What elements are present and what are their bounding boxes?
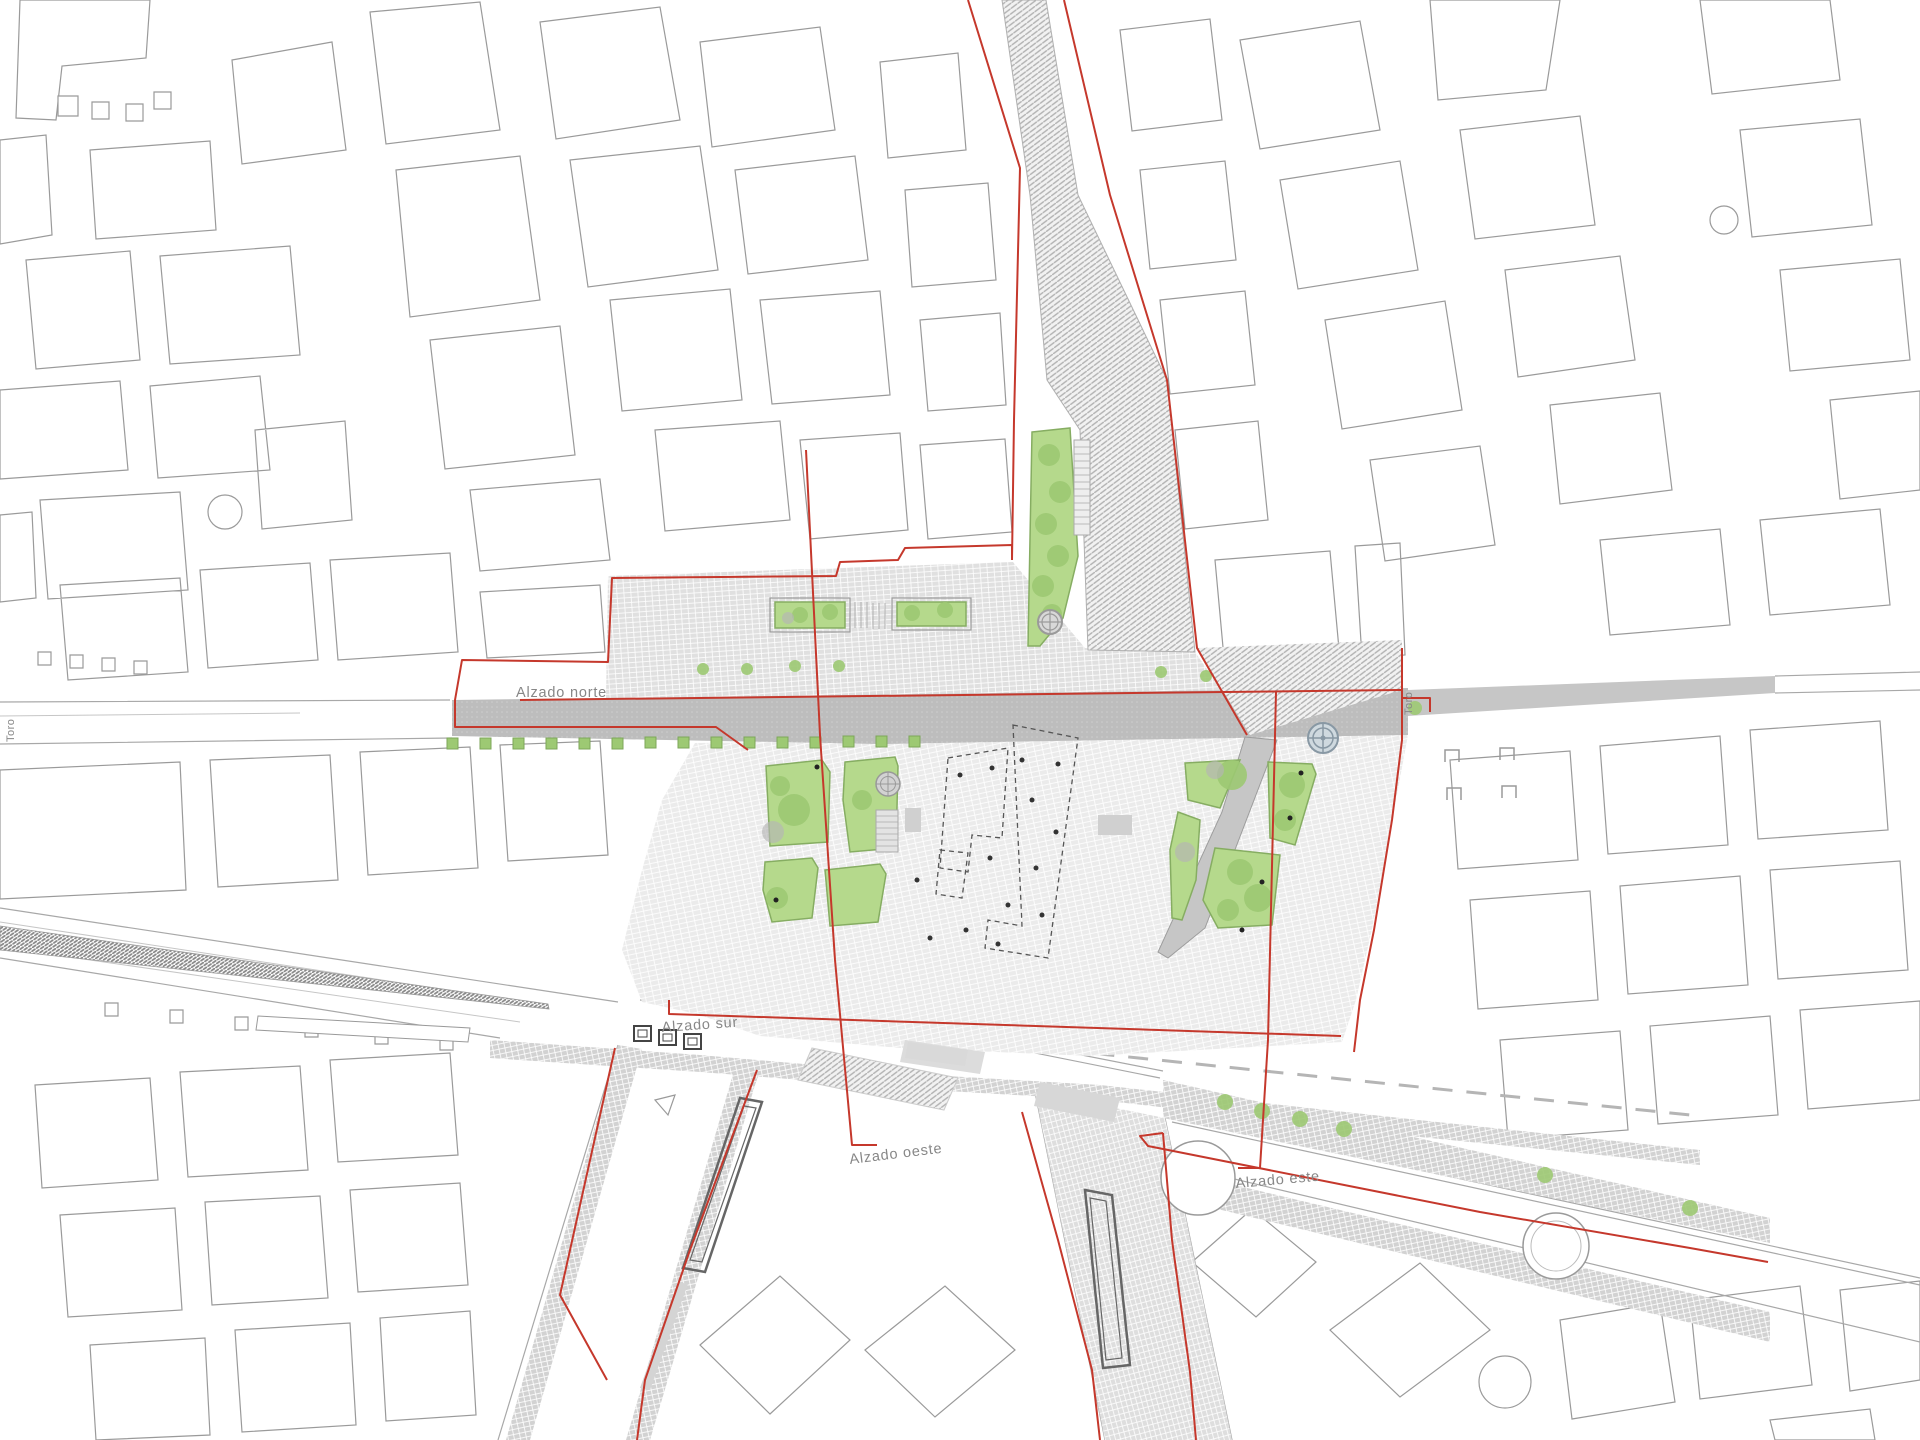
fountain-wheel-plaza [1308,723,1338,753]
round-outline-se [1479,1356,1531,1408]
buildings-west-mid [0,741,608,899]
plaza-stair-west [876,810,898,852]
kiosk-strip-west-road [256,1016,470,1042]
label-alzado-este: Alzado este [1235,1169,1321,1192]
buildings-south-center [700,1276,1015,1417]
label-toro-east: Toro [1403,692,1415,715]
buildings-northeast [1120,0,1920,669]
round-outline-ne [1710,206,1738,234]
buildings-southwest [35,1053,476,1440]
site-plan: Alzado norte Alzado sur Alzado oeste Alz… [0,0,1920,1440]
north-street-band-east [1408,676,1775,716]
west-road-median [0,926,549,1009]
label-toro-west: Toro [5,719,17,742]
toro-street-east-edges [1775,672,1920,693]
small-squares-northwest [58,92,171,121]
round-plaza-outline-nw [208,495,242,529]
buildings-east-mid [1450,721,1920,1139]
triangle-marker [655,1095,675,1115]
label-alzado-sur: Alzado sur [661,1015,738,1036]
parterre-west-4 [825,864,886,926]
fountain-wheel-west-parterre [876,772,900,796]
toro-street-west-edges [0,700,452,744]
fountain-wheel-top-street [1038,610,1062,634]
circle-feature-south [1161,1141,1235,1215]
bottom-left-street-paver-bands [506,1045,760,1440]
tree-grate-squares [447,736,920,749]
toro-street-west-inner [0,713,300,716]
label-alzado-norte: Alzado norte [516,685,607,701]
roundabout-se [1523,1213,1589,1279]
top-street-stair [1074,440,1090,535]
